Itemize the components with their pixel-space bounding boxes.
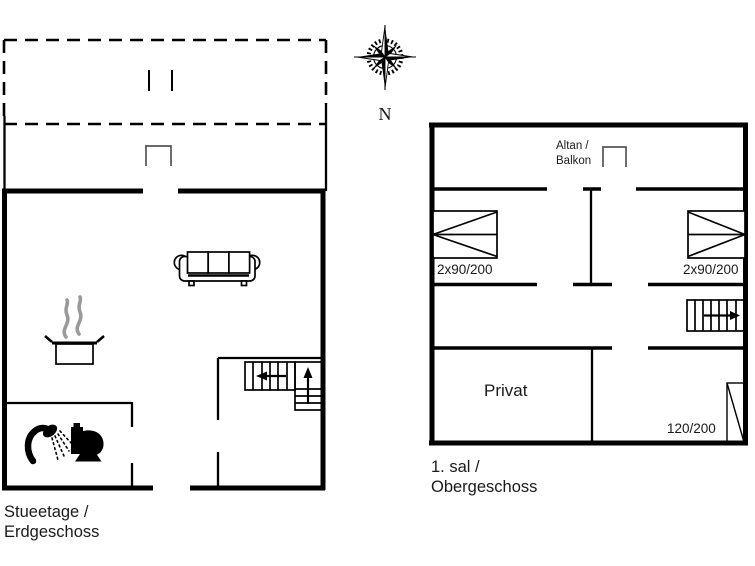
bed-left-size-label: 2x90/200: [437, 263, 493, 277]
upper-floor-plan: [429, 123, 748, 445]
staircase-icon: [687, 300, 744, 331]
compass-north-label: N: [373, 105, 397, 123]
double-bed-left-icon: [433, 211, 497, 258]
floor-plan-drawing: [0, 0, 755, 566]
double-bed-right-icon: [688, 211, 745, 258]
toilet-icon: [71, 423, 104, 462]
compass-rose-icon: [354, 25, 416, 90]
private-room-label: Privat: [484, 382, 527, 400]
upper-floor-caption: 1. sal / Obergeschoss: [431, 457, 537, 497]
staircase-icon: [245, 362, 322, 410]
balcony-label-line2: Balkon: [556, 154, 591, 169]
balcony-door-icon: [603, 147, 626, 167]
balcony-label: Altan / Balkon: [556, 139, 591, 169]
cooking-pot-icon: [45, 297, 104, 364]
steam-icon: [64, 297, 81, 337]
upper-floor-caption-line2: Obergeschoss: [431, 477, 537, 497]
balcony-label-line1: Altan /: [556, 139, 591, 154]
ground-floor-plan: [2, 40, 326, 490]
bed-right-size-label: 2x90/200: [683, 263, 739, 277]
bed-single-size-label: 120/200: [667, 422, 716, 436]
upper-floor-caption-line1: 1. sal /: [431, 457, 537, 477]
terrace-side-walls: [5, 104, 327, 191]
ground-floor-caption-line2: Erdgeschoss: [4, 522, 99, 542]
entrance-door-icon: [146, 146, 171, 166]
compass-major-points: [357, 26, 413, 88]
sofa-icon: [174, 252, 259, 286]
floor-plan-page: N Altan / Balkon 2x90/200 2x90/200 Priva…: [0, 0, 755, 566]
ground-floor-caption: Stueetage / Erdgeschoss: [4, 502, 99, 542]
terrace-opening-marks: [149, 70, 172, 91]
shower-icon: [28, 422, 73, 461]
interior-walls: [5, 358, 322, 489]
single-bed-icon: [727, 383, 744, 442]
ground-floor-caption-line1: Stueetage /: [4, 502, 99, 522]
terrace-dashed-outline: [4, 40, 326, 124]
